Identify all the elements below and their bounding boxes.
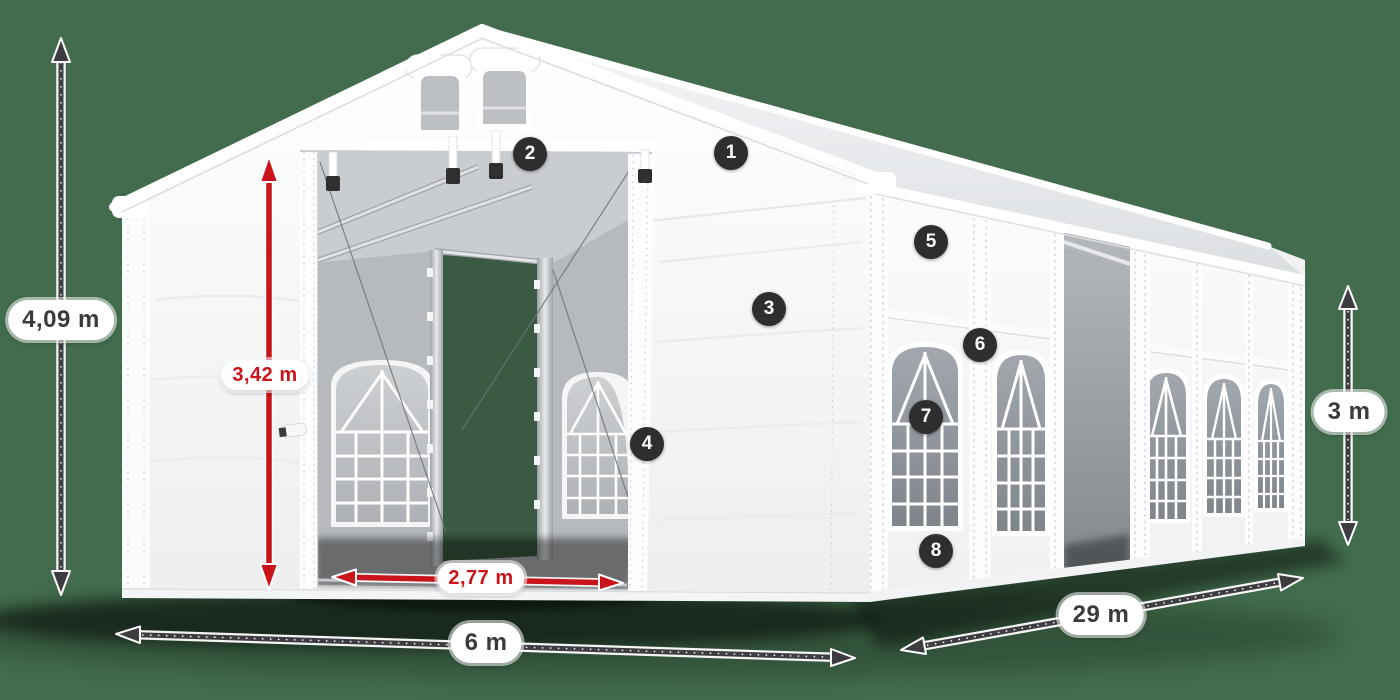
gable-vent-2 bbox=[470, 48, 540, 130]
callout-badge-7: 7 bbox=[909, 400, 943, 434]
callout-badge-6: 6 bbox=[963, 328, 997, 362]
callout-badge-5: 5 bbox=[914, 225, 948, 259]
side-window-2 bbox=[992, 350, 1050, 536]
side-window-5 bbox=[1254, 379, 1288, 512]
callout-badge-2: 2 bbox=[513, 137, 547, 171]
dimension-label-side-length: 29 m bbox=[1059, 595, 1144, 635]
product-image: 4,09 m 3,42 m 2,77 m 6 m 29 m 3 m 1 2 3 … bbox=[0, 0, 1400, 700]
callout-badge-1: 1 bbox=[714, 136, 748, 170]
side-window-4 bbox=[1203, 374, 1245, 517]
callout-badge-8: 8 bbox=[919, 534, 953, 568]
gable-vent-1 bbox=[406, 55, 472, 136]
side-window-3 bbox=[1143, 368, 1190, 523]
side-window-1 bbox=[887, 342, 963, 531]
dimension-label-entrance-height: 3,42 m bbox=[221, 360, 308, 390]
tent-illustration bbox=[0, 0, 1400, 700]
tent-interior bbox=[315, 149, 640, 589]
interior-window-1 bbox=[331, 360, 433, 527]
side-doorway-gap bbox=[1064, 226, 1130, 576]
front-corner-band bbox=[122, 206, 150, 598]
dimension-label-total-height: 4,09 m bbox=[8, 300, 114, 340]
interior-window-2 bbox=[562, 372, 634, 519]
interior-open-gap bbox=[443, 255, 537, 561]
dimension-label-entrance-width: 2,77 m bbox=[437, 563, 524, 593]
callout-badge-4: 4 bbox=[630, 427, 664, 461]
dimension-label-front-width: 6 m bbox=[451, 623, 522, 663]
dimension-label-wall-height: 3 m bbox=[1314, 392, 1385, 432]
callout-badge-3: 3 bbox=[752, 292, 786, 326]
